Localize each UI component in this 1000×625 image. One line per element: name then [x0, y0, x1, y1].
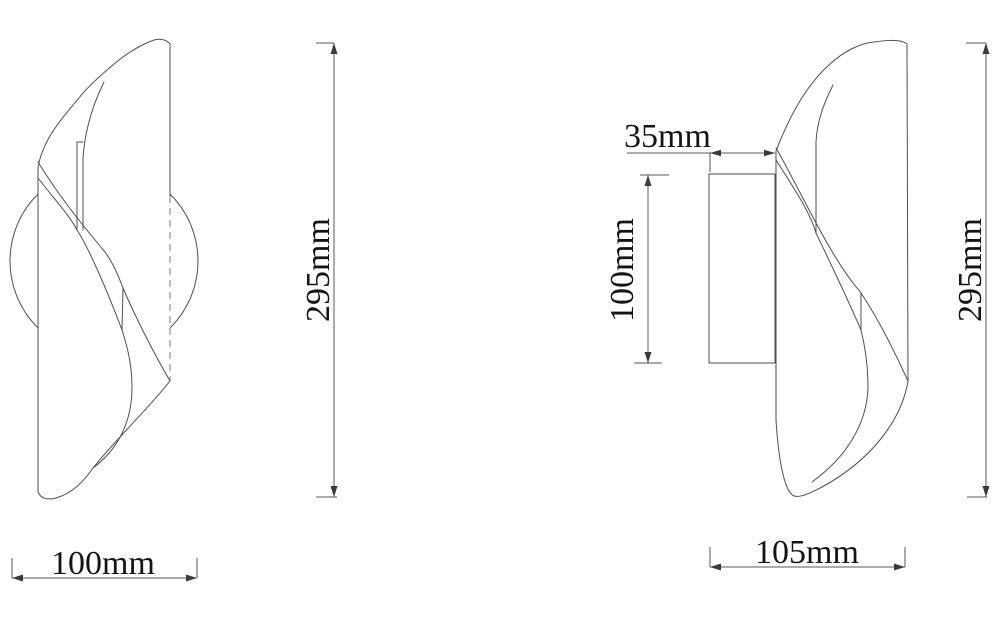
side-height-arrow-up	[983, 43, 990, 54]
side-depth-dimension: 35mm	[624, 118, 775, 172]
side-depth-arrow-left	[710, 150, 721, 156]
front-view	[10, 39, 198, 499]
side-plate-height-dimension: 100mm	[604, 175, 669, 363]
side-height-dimension: 295mm	[952, 43, 990, 497]
side-width-arrow-left	[710, 564, 721, 571]
lamp-dimension-drawing: 295mm 100mm 35mm	[0, 0, 1000, 625]
side-height-dim-label: 295mm	[952, 218, 989, 322]
front-width-arrow-right	[186, 575, 197, 582]
side-plate-height-arrow-down	[645, 352, 652, 363]
side-plate-height-dim-label: 100mm	[604, 218, 641, 322]
side-width-dimension: 105mm	[710, 534, 905, 571]
front-width-dimension: 100mm	[12, 545, 197, 582]
front-width-arrow-left	[12, 575, 23, 582]
front-height-arrow-down	[331, 486, 338, 497]
side-view	[709, 40, 908, 496]
side-depth-dim-label: 35mm	[624, 118, 711, 155]
front-height-dimension: 295mm	[300, 43, 338, 497]
side-mount-plate	[709, 174, 775, 363]
side-depth-arrow-right	[764, 150, 775, 156]
side-plate-height-arrow-up	[645, 175, 652, 186]
side-width-arrow-right	[894, 564, 905, 571]
front-height-arrow-up	[331, 43, 338, 54]
front-width-dim-label: 100mm	[51, 545, 155, 582]
side-width-dim-label: 105mm	[755, 534, 859, 571]
side-height-arrow-down	[983, 486, 990, 497]
front-height-dim-label: 295mm	[300, 218, 337, 322]
technical-drawing-canvas: 295mm 100mm 35mm	[0, 0, 1000, 625]
front-body-fill	[38, 39, 170, 499]
